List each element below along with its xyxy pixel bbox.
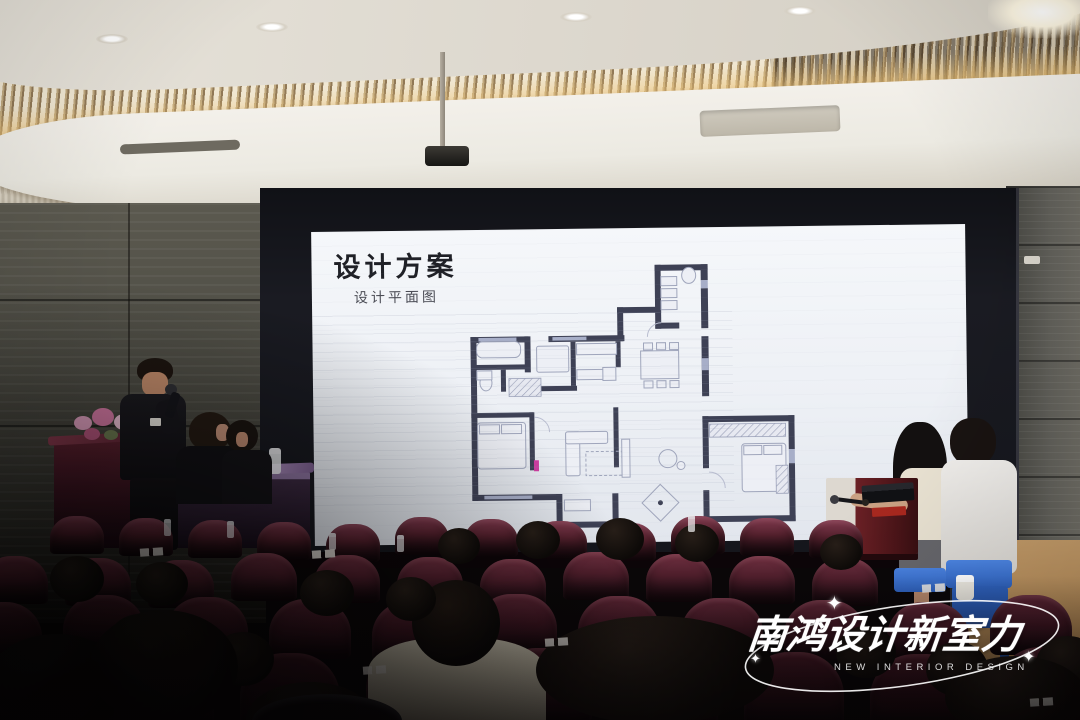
seat-label <box>312 549 336 559</box>
audience-head <box>136 562 188 606</box>
audience-head <box>300 570 354 616</box>
wrist-watch <box>862 499 869 506</box>
audience-seat <box>50 516 104 554</box>
audience-head <box>516 521 560 559</box>
audience-head <box>596 518 644 560</box>
sparkle-icon: ✦ <box>826 594 843 614</box>
audience-head <box>50 556 104 602</box>
audience-seat <box>0 556 48 604</box>
water-bottle <box>164 519 171 536</box>
sparkle-icon: ✦ <box>750 652 761 665</box>
seat-label <box>140 547 164 557</box>
water-bottle <box>329 533 336 550</box>
watermark-subtitle: NEW INTERIOR DESIGN <box>834 662 1029 673</box>
seat-label <box>363 665 387 675</box>
audience-seat <box>740 518 794 556</box>
auditorium-scene: 设计方案 设计平面图 <box>0 0 1080 720</box>
watermark: 南鸿设计新室力 NEW INTERIOR DESIGN <box>742 588 1068 710</box>
audience-head <box>675 524 719 562</box>
audience-seat <box>231 553 297 601</box>
water-bottle <box>688 515 695 532</box>
audience-head <box>438 528 480 564</box>
audience-head <box>536 616 774 720</box>
audience-head <box>90 610 238 720</box>
audience-head <box>386 577 436 621</box>
water-bottle <box>397 535 404 552</box>
sparkle-icon: ✦ <box>1022 650 1035 666</box>
audience-head <box>820 534 862 570</box>
seat-label <box>545 637 569 647</box>
water-bottle <box>227 521 234 538</box>
